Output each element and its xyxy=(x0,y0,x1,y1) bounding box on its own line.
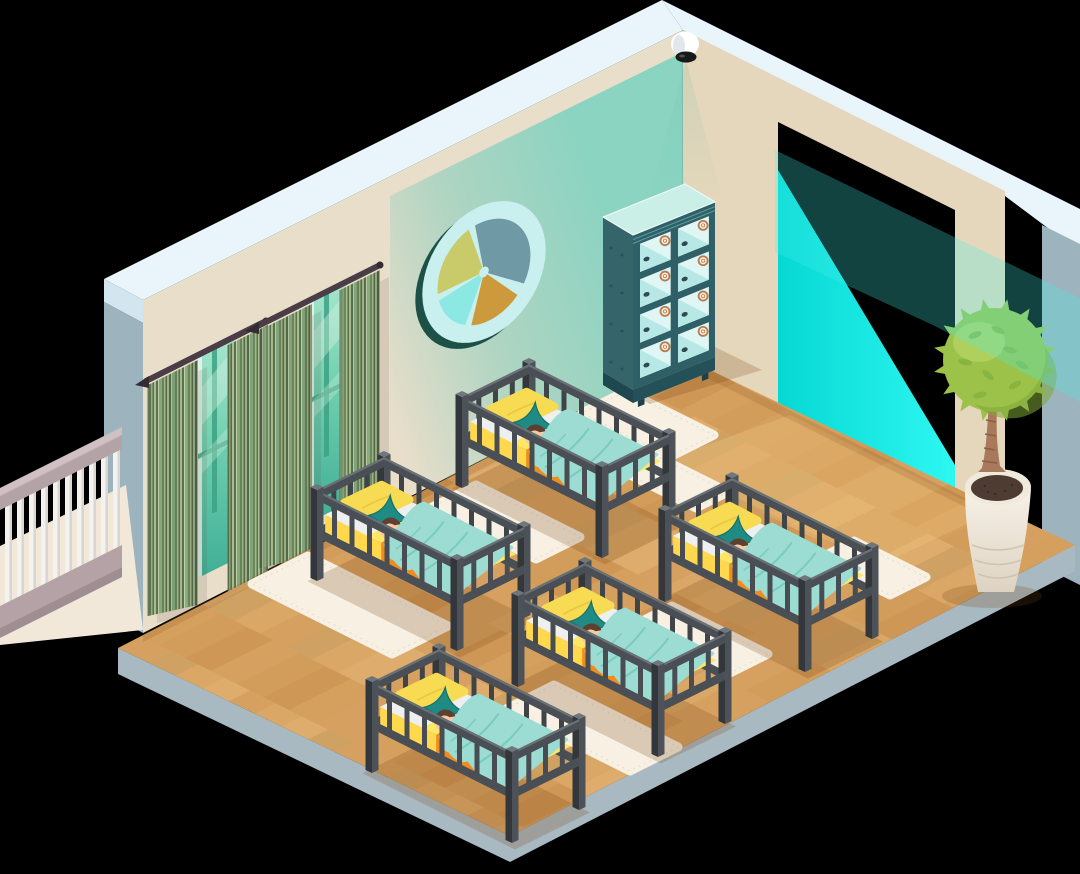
illustration-stage: Isometric nursery sleeping room illustra… xyxy=(0,0,1080,874)
nursery-room-illustration: Isometric nursery sleeping room illustra… xyxy=(0,0,1080,874)
